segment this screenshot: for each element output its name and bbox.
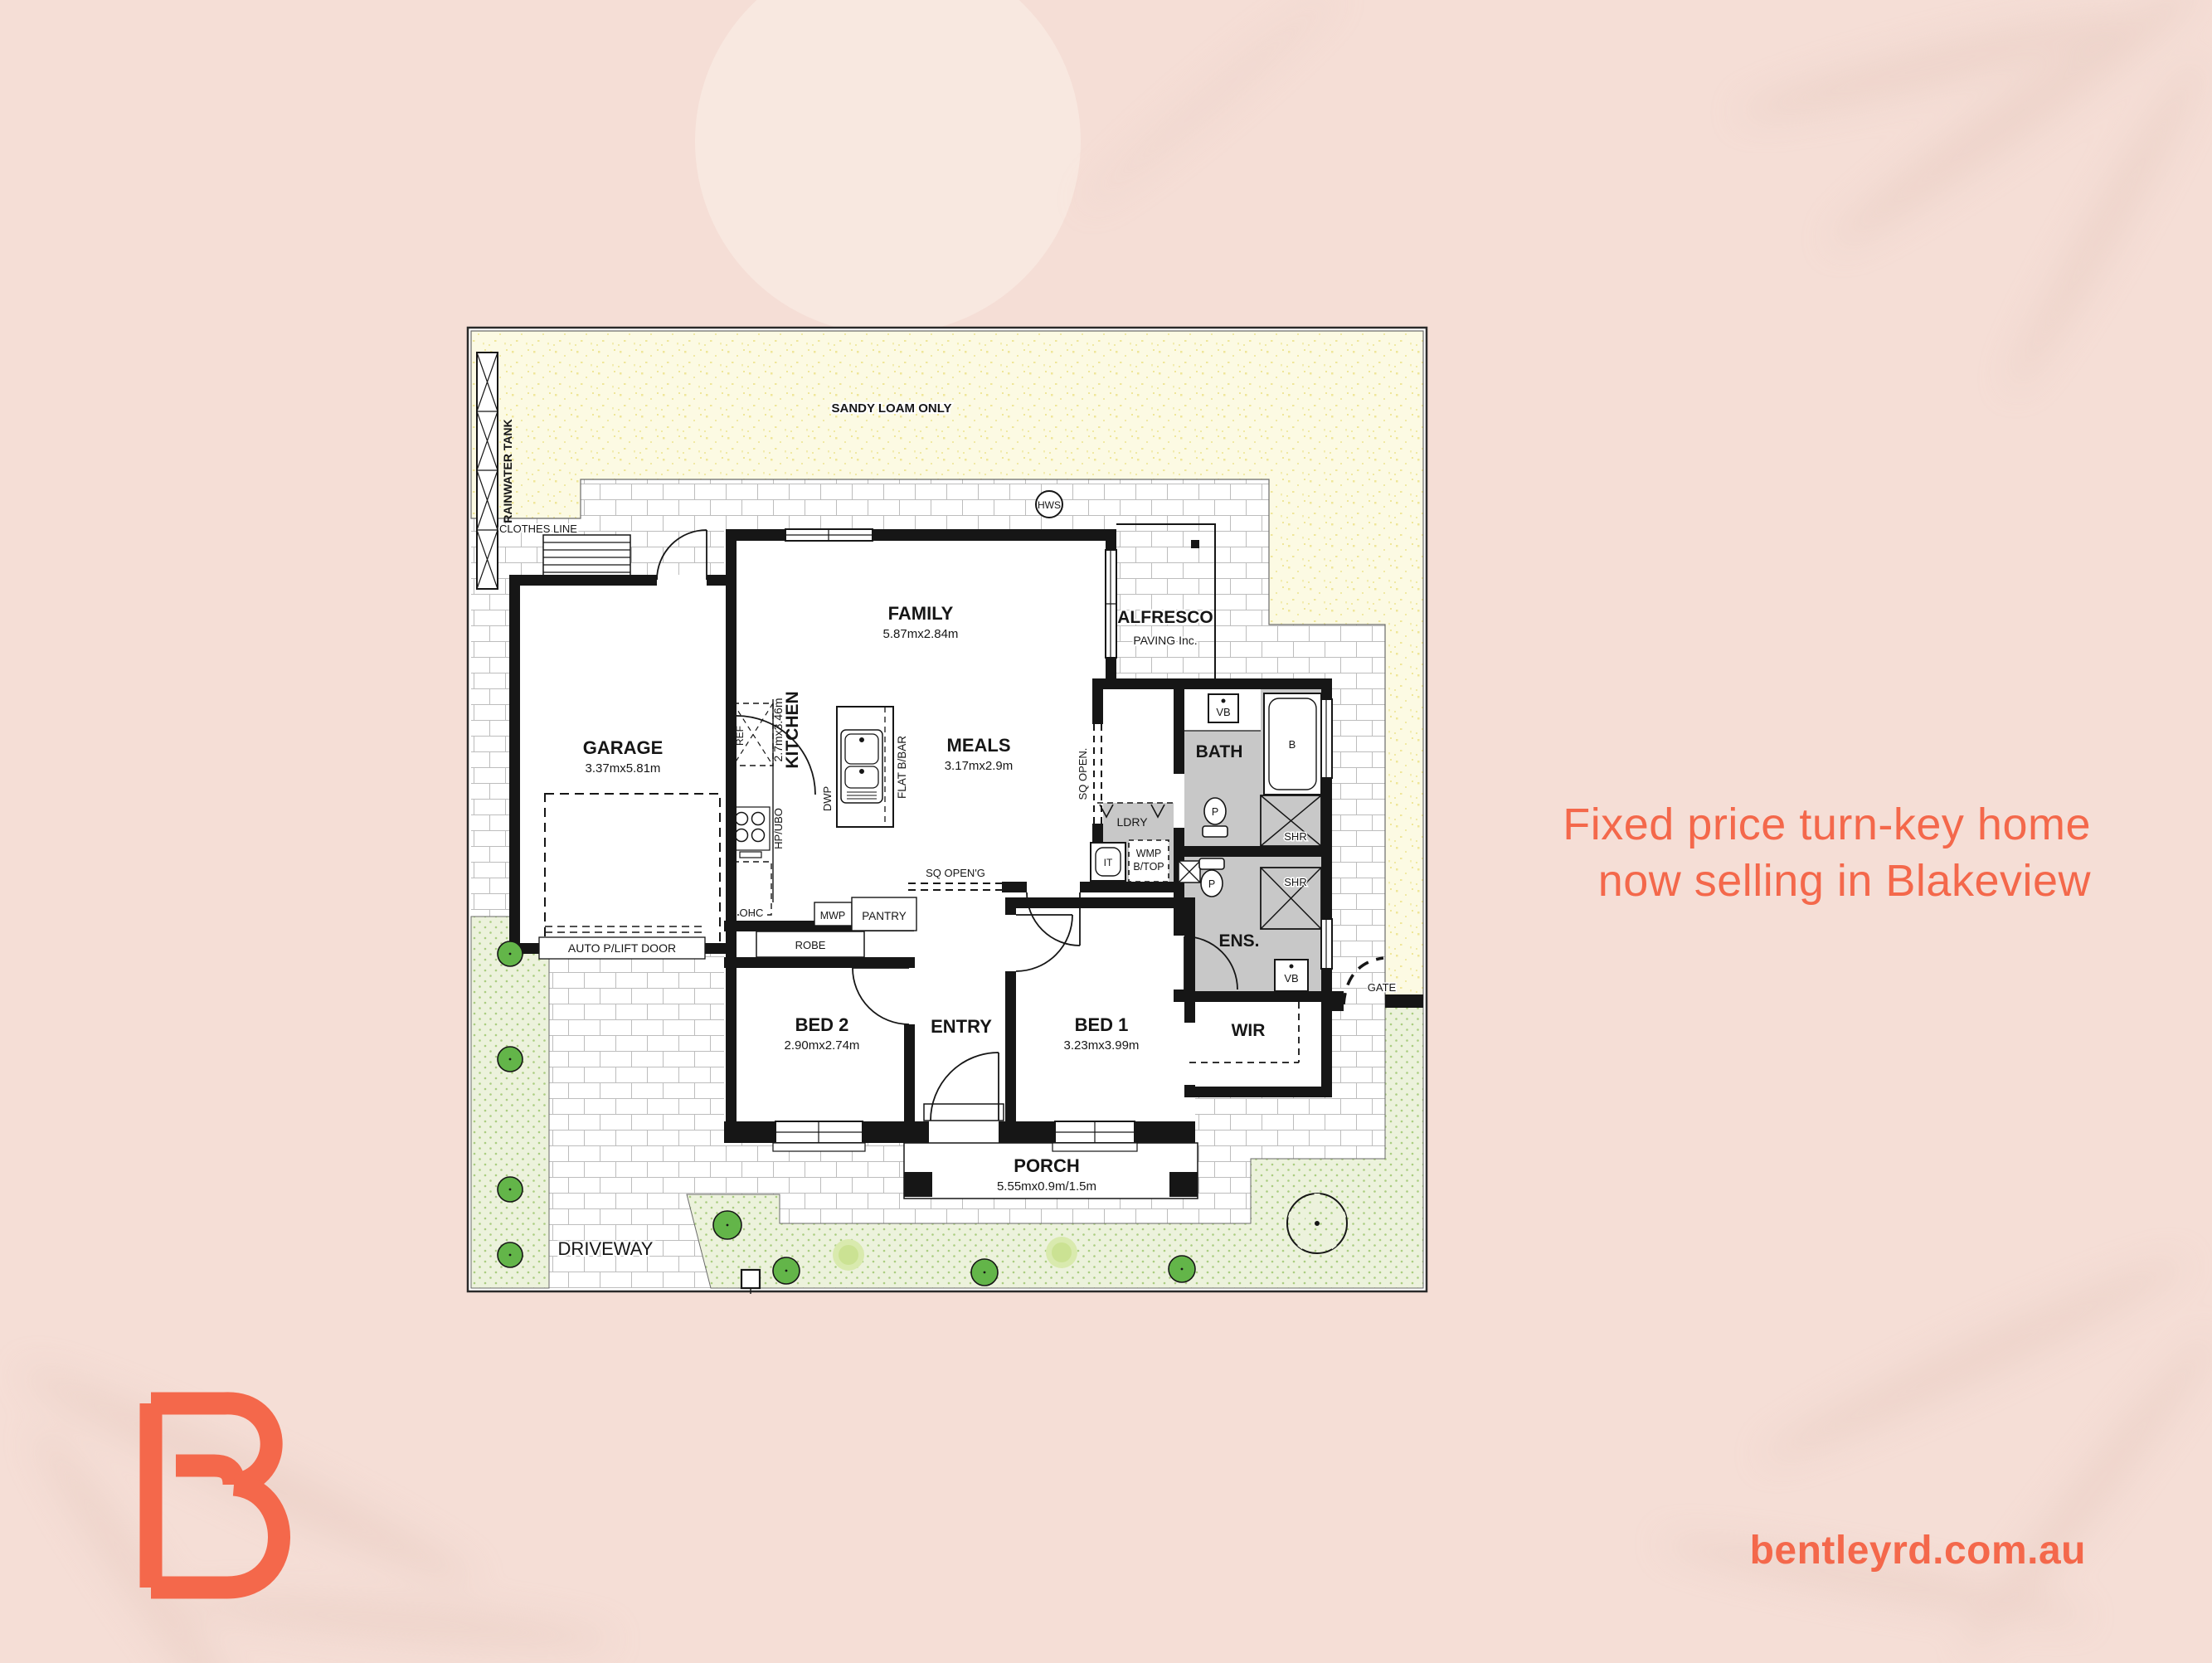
floor-plan-panel: RAINWATER TANK SANDY LOAM ONLY CLOTHES L… [466, 326, 1428, 1295]
ens-window [1321, 919, 1332, 969]
room-dims-meals: 3.17mx2.9m [945, 759, 1014, 773]
headline: Fixed price turn-key home now selling in… [1563, 796, 2091, 909]
bed1-window [1053, 1121, 1137, 1151]
headline-line2: now selling in Blakeview [1563, 853, 2091, 909]
robe-label: ROBE [795, 939, 826, 951]
room-dims-kitchen: 2.7mx3.46m [771, 698, 785, 761]
pantry-label: PANTRY [862, 910, 907, 922]
flyer-canvas: RAINWATER TANK SANDY LOAM ONLY CLOTHES L… [0, 0, 2212, 1663]
headline-line1: Fixed price turn-key home [1563, 796, 2091, 853]
room-label-porch: PORCH [1014, 1155, 1079, 1176]
wmp-label-1: WMP [1136, 848, 1162, 859]
rainwater-tank-label: RAINWATER TANK [501, 419, 514, 523]
bentley-rd-logo [118, 1387, 323, 1604]
logo-mid-bar [176, 1466, 234, 1485]
room-label-kitchen: KITCHEN [783, 691, 802, 768]
mwp-label: MWP [820, 910, 846, 921]
floor-plan: RAINWATER TANK SANDY LOAM ONLY CLOTHES L… [466, 326, 1428, 1295]
alfresco-label: ALFRESCO [1117, 608, 1213, 627]
ens-toilet [1199, 858, 1224, 897]
ens-vb-label: VB [1284, 972, 1298, 985]
ens-shr-label: SHR [1284, 876, 1306, 888]
ref-label: REF [734, 726, 746, 746]
bathtub-label: B [1289, 738, 1296, 751]
ens-pan-label: P [1208, 878, 1215, 890]
room-label-entry: ENTRY [931, 1016, 992, 1037]
sq-open-label: SQ OPEN. [1077, 748, 1089, 800]
fence [1385, 994, 1423, 1008]
room-label-ens: ENS. [1218, 931, 1259, 951]
room-dims-bed2: 2.90mx2.74m [785, 1038, 860, 1053]
room-label-ldry: LDRY [1116, 815, 1148, 829]
family-window-east [1106, 550, 1116, 658]
bath-vb-label: VB [1216, 706, 1230, 718]
gate-label: GATE [1368, 981, 1397, 994]
it-label: IT [1104, 857, 1113, 868]
garden-strip-left [471, 917, 549, 1288]
hot-water-service: HWS [1036, 491, 1062, 518]
downpipe-marker [1191, 540, 1199, 548]
room-label-meals: MEALS [947, 735, 1011, 756]
website-url: bentleyrd.com.au [1750, 1528, 2086, 1573]
ohc-label: OHC [740, 907, 764, 919]
room-label-family: FAMILY [888, 603, 954, 624]
dwp-label: DWP [821, 786, 834, 811]
driveway-label: DRIVEWAY [558, 1238, 654, 1259]
room-label-bath: BATH [1196, 742, 1243, 761]
sandy-loam-label: SANDY LOAM ONLY [831, 401, 951, 416]
room-dims-porch: 5.55mx0.9m/1.5m [997, 1179, 1096, 1194]
auto-door-label: AUTO P/LIFT DOOR [568, 941, 676, 955]
bath-window [1321, 699, 1332, 778]
room-label-bed1: BED 1 [1075, 1014, 1129, 1035]
wmp-label-2: B/TOP [1133, 861, 1164, 873]
bed2-window [773, 1121, 865, 1151]
room-dims-garage: 3.37mx5.81m [586, 761, 661, 776]
alfresco-note: PAVING Inc. [1133, 634, 1197, 647]
room-label-wir: WIR [1232, 1021, 1266, 1040]
hp-ubo-label: HP/UBO [772, 808, 785, 849]
family-window-top [785, 529, 873, 541]
bath-pan-label: P [1212, 806, 1218, 818]
porch-pillar-left [904, 1172, 932, 1197]
clothes-line-label: CLOTHES LINE [499, 523, 577, 535]
bath-shr-label: SHR [1284, 830, 1306, 843]
room-label-garage: GARAGE [583, 737, 664, 758]
logo-bottom-bowl [151, 1485, 280, 1588]
flat-bbar-label: FLAT B/BAR [896, 736, 908, 799]
gate-post [1332, 991, 1344, 1011]
porch-pillar-right [1169, 1172, 1198, 1197]
room-label-bed2: BED 2 [795, 1014, 849, 1035]
sq-opening-label: SQ OPEN'G [926, 867, 985, 879]
floor-waste [1179, 861, 1200, 883]
hws-label: HWS [1038, 499, 1061, 511]
room-dims-bed1: 3.23mx3.99m [1064, 1038, 1140, 1053]
room-dims-family: 5.87mx2.84m [883, 627, 959, 641]
